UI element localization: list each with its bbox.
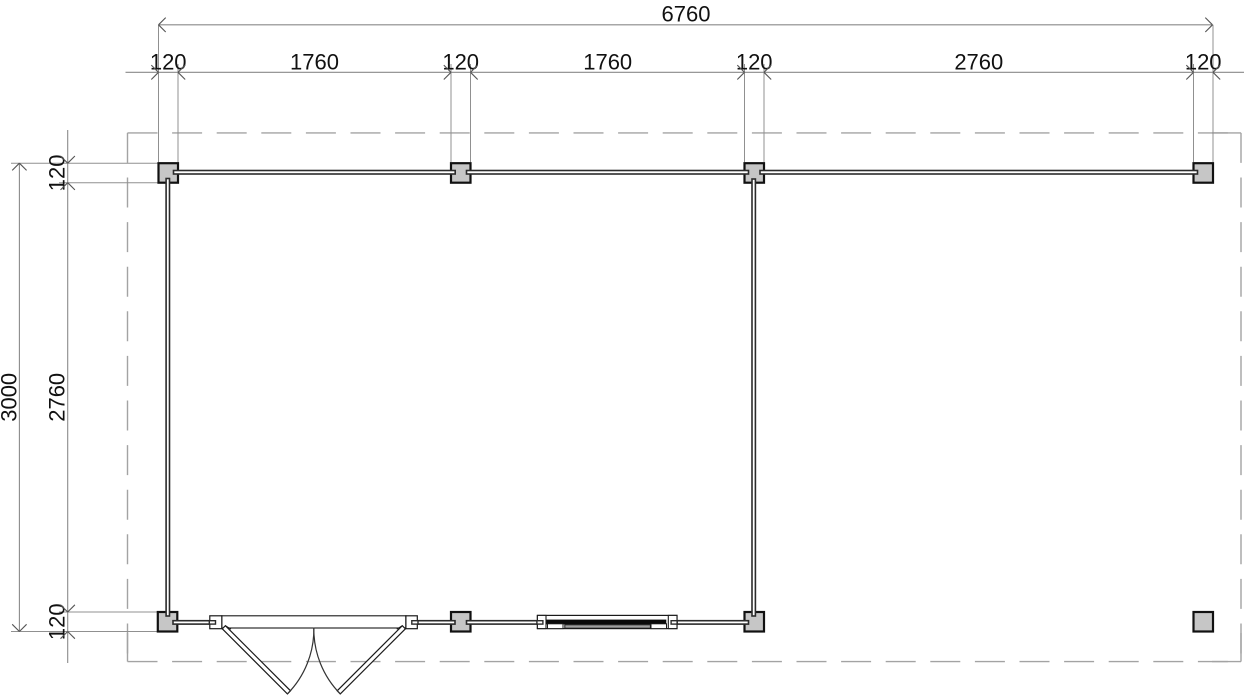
svg-text:120: 120 — [45, 603, 70, 640]
svg-text:2760: 2760 — [45, 373, 70, 422]
svg-text:6760: 6760 — [662, 2, 711, 27]
svg-text:120: 120 — [45, 155, 70, 192]
svg-text:1760: 1760 — [290, 50, 339, 75]
svg-text:120: 120 — [442, 50, 479, 75]
svg-text:120: 120 — [150, 50, 187, 75]
svg-text:2760: 2760 — [954, 50, 1003, 75]
svg-text:120: 120 — [736, 50, 773, 75]
svg-text:1760: 1760 — [583, 50, 632, 75]
svg-text:3000: 3000 — [0, 373, 22, 422]
svg-text:120: 120 — [1185, 50, 1222, 75]
